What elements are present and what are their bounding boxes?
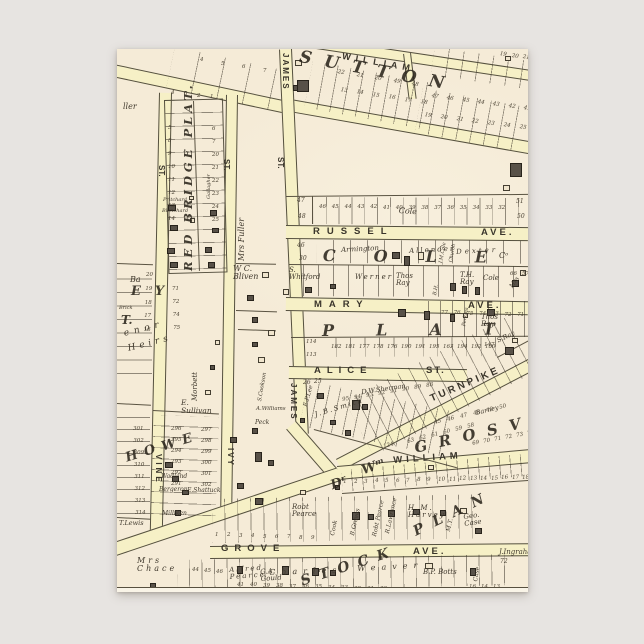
lot-number: 302 <box>201 483 212 489</box>
lot-number: 313 <box>135 499 146 505</box>
lot-number: 93 <box>366 393 374 400</box>
lot-50: 50 <box>517 214 525 220</box>
lot-number: 48 <box>411 82 419 89</box>
owner-th-ray: T.H. Ray <box>460 272 474 286</box>
lot-number: 291 <box>171 482 182 488</box>
lot-number: 12 <box>168 191 175 197</box>
lot-number: 35 <box>460 206 467 212</box>
lot-number: 76 <box>454 311 461 317</box>
lot-number: 20 <box>440 115 448 122</box>
lot-number: 6 <box>396 479 400 485</box>
lot-72: 72 <box>500 559 508 565</box>
lot-number: 301 <box>133 427 144 433</box>
lot-number: 22 <box>471 119 479 126</box>
lot-number: 37 <box>434 206 441 212</box>
owner-morbett: Morbett <box>192 372 199 401</box>
owner-bp-botts: B.P. Botts <box>423 569 457 576</box>
building <box>505 347 514 355</box>
street-label-russel: RUSSEL <box>313 227 394 237</box>
building <box>247 295 254 301</box>
lot-number: 77 <box>441 311 448 317</box>
building <box>368 514 374 520</box>
owner-e-sullivan: E. Sullivan <box>181 399 212 414</box>
street-label-james-lower: JAMES <box>289 383 297 421</box>
lot-number: 15 <box>491 476 498 482</box>
parcel-line <box>312 196 313 224</box>
lot-number: 1 <box>210 95 214 101</box>
owner-peck: Peck <box>255 420 269 426</box>
lot-number: 42 <box>370 205 377 211</box>
lot-number: 72 <box>172 300 179 306</box>
building <box>283 289 289 295</box>
lot-number: 38 <box>421 206 428 212</box>
street-label-james-st: ST. <box>276 157 284 169</box>
lot-number: 15 <box>372 93 380 100</box>
building <box>475 528 482 534</box>
building <box>212 228 219 233</box>
lot-number: 43 <box>357 205 364 211</box>
lot-number: 39 <box>409 206 416 212</box>
lot-number: 45 <box>332 205 339 211</box>
lot-number: 73 <box>516 433 524 440</box>
lot-number: 41 <box>383 206 390 212</box>
lot-number: 178 <box>373 345 384 351</box>
lot-number: 13 <box>493 585 500 588</box>
lot-number: 1 <box>215 533 219 539</box>
lot-number: 40 <box>250 583 257 588</box>
street-label-mary-ave: AVE. <box>468 301 501 311</box>
building <box>345 430 351 436</box>
building <box>252 428 258 434</box>
building <box>208 262 215 268</box>
owner-fuller-partial: ller <box>123 103 137 111</box>
lot-number: 92 <box>378 391 386 398</box>
lot-number: 298 <box>201 439 212 445</box>
lot-number: 9 <box>168 152 172 158</box>
lot-number: 180 <box>485 345 496 351</box>
lot-number: 292 <box>171 471 182 477</box>
lot-number: 24 <box>212 205 219 211</box>
lot-number: 47 <box>431 94 439 101</box>
lot-number: 195 <box>429 345 440 351</box>
marble-background: WILLIAMJAMESST.ST.ST.RUSSELAVE.MARYAVE.A… <box>0 0 644 644</box>
lot-number: 44 <box>192 568 199 574</box>
lot-number: 314 <box>135 511 146 517</box>
owner-brick: Brick <box>119 306 133 311</box>
street-label-james-vertical: JAMES <box>281 53 289 91</box>
lot-number: 16 <box>469 585 476 588</box>
building <box>268 460 274 466</box>
lot-number: 71 <box>494 437 502 444</box>
lot-number: 41 <box>237 583 244 588</box>
building <box>262 272 269 278</box>
building <box>255 452 262 462</box>
lot-number: 43 <box>492 102 500 109</box>
owner-ba: Ba <box>130 276 141 284</box>
lot-number: 50 <box>499 404 507 411</box>
lot-number: 13 <box>470 477 477 483</box>
lot-number: 25 <box>519 125 527 132</box>
lot-number: 5 <box>221 62 225 68</box>
lot-number: 4 <box>171 91 175 97</box>
lot-number: 74 <box>173 313 180 319</box>
lot-number: 19 <box>145 287 152 293</box>
lot-number: 71 <box>517 313 524 319</box>
lot-number: 69 <box>472 441 480 448</box>
lot-number: 194 <box>457 345 468 351</box>
lot-number: 35 <box>315 585 322 588</box>
lot-number: 46 <box>216 570 223 576</box>
lot-number: 3 <box>239 534 243 540</box>
building <box>210 210 217 216</box>
plat-label-red-bridge: RED BRIDGE PLAT. <box>183 81 195 271</box>
lot-number: 72 <box>505 435 513 442</box>
lot-number: 2 <box>354 480 358 486</box>
lot-number: 40 <box>396 206 403 212</box>
lot-number: 310 <box>134 463 145 469</box>
lot-number: 44 <box>345 205 352 211</box>
lot-114: 114 <box>306 340 317 346</box>
lot-number: 20 <box>146 273 153 279</box>
lot-number: 46 <box>446 96 454 103</box>
street-label-russel-ave: AVE. <box>481 228 514 238</box>
lot-number: 16 <box>144 328 151 334</box>
building <box>503 185 510 191</box>
lot-number: 41 <box>523 106 528 113</box>
lot-number: 71 <box>172 287 179 293</box>
lot-number: 16 <box>501 476 508 482</box>
owner-co: Cᵒ <box>499 252 508 260</box>
lot-number: 6 <box>275 535 279 541</box>
building <box>512 338 518 343</box>
lot-number: 33 <box>341 586 348 588</box>
building <box>297 80 309 92</box>
owner-wc-bliven: W C. Bliven <box>233 265 258 281</box>
lot-number: 2 <box>227 533 231 539</box>
lot-number: 13 <box>340 88 348 95</box>
lot-number: 302 <box>133 439 144 445</box>
lot-number: 34 <box>473 206 480 212</box>
building <box>150 583 156 588</box>
lot-number: 19 <box>499 52 507 59</box>
street-label-mary: MARY <box>314 300 370 310</box>
lot-number: 23 <box>212 192 219 198</box>
lot-number: 18 <box>522 475 528 481</box>
building <box>237 483 244 489</box>
lot-number: 176 <box>387 345 398 351</box>
building <box>450 283 456 291</box>
lot-number: 44 <box>477 100 485 107</box>
building <box>330 284 336 289</box>
lot-number: 2 <box>197 94 201 100</box>
lot-number: 4 <box>200 58 204 64</box>
lot-number: 7 <box>212 140 216 146</box>
lot-number: 312 <box>135 487 146 493</box>
lot-number: 7 <box>287 535 291 541</box>
lot-number: 22 <box>337 70 345 77</box>
lot-number: 48 <box>473 410 481 417</box>
owner-milliken: Milliken <box>162 511 187 517</box>
lot-number: 13 <box>168 204 175 210</box>
lot-number: 8 <box>299 536 303 542</box>
lot-number: 10 <box>438 477 445 483</box>
lot-number: 300 <box>201 461 212 467</box>
lot-number: 4 <box>251 534 255 540</box>
lot-number: 22 <box>212 179 219 185</box>
postcard: WILLIAMJAMESST.ST.ST.RUSSELAVE.MARYAVE.A… <box>117 49 528 592</box>
lot-number: 295 <box>171 438 182 444</box>
lot-47: 47 <box>297 198 305 204</box>
lot-number: 47 <box>460 413 468 420</box>
lot-number: 17 <box>404 98 412 105</box>
lot-number: 36 <box>302 585 309 588</box>
lot-113: 113 <box>306 353 317 359</box>
owner-blanchard: Blanchard <box>162 209 188 214</box>
street-label-grove: GROVE <box>221 544 285 554</box>
lot-number: 11 <box>168 178 175 184</box>
lot-number: 14 <box>481 585 488 588</box>
building <box>252 317 258 323</box>
building <box>170 225 178 231</box>
lot-number: 181 <box>345 345 356 351</box>
lot-number: 70 <box>483 439 491 446</box>
owner-thos-ray-1: Thos Ray <box>396 273 413 287</box>
street-label-st-left: ST. <box>157 165 165 177</box>
building <box>258 357 265 363</box>
building <box>252 342 258 347</box>
lot-number: 45 <box>204 569 211 575</box>
lot-number: 46 <box>319 205 326 211</box>
owner-robt-pearce-1: Robt Pearce <box>292 504 316 518</box>
lot-number: 14 <box>168 217 175 223</box>
lot-number: 12 <box>459 477 466 483</box>
lot-number: 32 <box>354 587 361 588</box>
lot-number: 42 <box>508 104 516 111</box>
lot-number: 21 <box>456 117 464 124</box>
lot-number: 296 <box>171 427 182 433</box>
owner-cole: Cole <box>483 275 499 282</box>
building <box>362 404 368 410</box>
parcel-line <box>236 310 277 312</box>
lot-number: 192 <box>471 345 482 351</box>
lot-57: 57 <box>522 272 528 278</box>
lot-number: 8 <box>417 478 421 484</box>
owner-whitford: S. Whitford <box>289 267 320 281</box>
building <box>293 85 298 91</box>
lot-48: 48 <box>298 214 306 220</box>
lot-number: 91 <box>390 389 398 396</box>
building <box>210 365 215 370</box>
lot-number: 19 <box>424 113 432 120</box>
lot-number: 182 <box>331 345 342 351</box>
lot-number: 23 <box>487 121 495 128</box>
lot-number: 72 <box>505 313 512 319</box>
lot-number: 33 <box>485 206 492 212</box>
lot-number: 8 <box>168 139 172 145</box>
lot-number: 9 <box>427 478 431 484</box>
lot-number: 74 <box>527 431 528 438</box>
lot-number: 75 <box>173 326 180 332</box>
lot-number: 31 <box>367 587 374 588</box>
building <box>462 286 467 294</box>
lot-66: 66 <box>510 272 517 278</box>
lot-number: 95 <box>342 397 350 404</box>
lot-number: 20 <box>212 153 219 159</box>
street-label-grove-ave: AVE. <box>413 547 446 557</box>
lot-number: 6 <box>242 65 246 71</box>
owner-t-lewis: T.Lewis <box>119 520 144 527</box>
lot-number: 301 <box>201 472 212 478</box>
lot-number: 191 <box>415 345 426 351</box>
building <box>255 498 263 505</box>
lot-number: 17 <box>512 476 519 482</box>
lot-number: 5 <box>184 92 188 98</box>
street-label-alice-st: ST. <box>426 366 446 376</box>
owner-a-williams: A.Williams <box>256 407 286 413</box>
lot-number: 11 <box>449 477 456 483</box>
lot-number: 36 <box>447 206 454 212</box>
lot-number: 75 <box>466 312 473 318</box>
lot-number: 5 <box>263 535 267 541</box>
street-label-st-mid: ST. <box>222 159 230 171</box>
lot-number: 5 <box>168 126 172 132</box>
building <box>215 340 220 345</box>
lot-51: 51 <box>516 199 524 205</box>
lot-number: 299 <box>201 450 212 456</box>
lot-30: 30 <box>299 256 307 262</box>
vintage-plat-map: WILLIAMJAMESST.ST.ST.RUSSELAVE.MARYAVE.A… <box>117 49 528 588</box>
lot-number: 311 <box>134 475 145 481</box>
building <box>230 437 237 443</box>
plat-label-t: T. <box>121 314 133 326</box>
lot-number: 73 <box>492 312 499 318</box>
lot-number: 14 <box>480 476 487 482</box>
owner-s-cookson: S.Cookson <box>258 372 269 402</box>
building <box>510 163 522 177</box>
lot-number: 4 <box>375 479 379 485</box>
building <box>205 390 211 395</box>
building <box>170 262 178 268</box>
lot-number: 37 <box>289 585 296 588</box>
lot-number: 88 <box>426 383 434 390</box>
lot-number: 163 <box>443 345 454 351</box>
building <box>205 247 212 253</box>
lot-number: 17 <box>144 314 151 320</box>
lot-number: 46 <box>447 416 455 423</box>
building <box>398 309 406 317</box>
lot-46b: 46 <box>297 243 305 249</box>
lot-26: 26 <box>303 380 311 386</box>
lot-number: 293 <box>171 460 182 466</box>
owner-bergeron: Bergeron <box>159 487 188 493</box>
owner-mrs-fuller: Mrs Fuller <box>238 218 246 261</box>
lot-number: 1 <box>343 480 347 486</box>
lot-number: 6 <box>212 127 216 133</box>
building <box>300 490 306 495</box>
lot-number: 309 <box>134 451 145 457</box>
building <box>167 248 175 254</box>
building <box>330 420 336 425</box>
lot-number: 34 <box>328 586 335 588</box>
lot-number: 9 <box>311 536 315 542</box>
lot-25: 25 <box>314 379 322 385</box>
lot-number: 7 <box>263 69 267 75</box>
building <box>424 311 430 320</box>
owner-geo-case: Geo. Case <box>463 512 482 529</box>
lot-number: 74 <box>479 312 486 318</box>
owner-e-shattuck: E.Shattuck <box>187 488 221 494</box>
lot-number: 24 <box>503 123 511 130</box>
lot-number: 20 <box>511 54 519 61</box>
lot-number: 32 <box>498 206 505 212</box>
building <box>305 287 312 293</box>
lot-number: 90 <box>402 387 410 394</box>
lot-number: 5 <box>385 479 389 485</box>
lot-number: 294 <box>171 449 182 455</box>
lot-number: 45 <box>462 98 470 105</box>
owner-mrs-chace: Mrs Chace <box>137 557 177 573</box>
owner-hm-harvey: H.M. Harvey <box>408 505 446 519</box>
lot-number: 94 <box>354 395 362 402</box>
lot-number: 38 <box>276 584 283 588</box>
lot-number: 18 <box>145 301 152 307</box>
lot-number: 21 <box>356 73 364 80</box>
building <box>317 393 324 399</box>
lot-number: 16 <box>388 95 396 102</box>
building <box>475 287 480 295</box>
lot-number: 18 <box>420 100 428 107</box>
owner-j-ingraham: J.Ingraham <box>499 549 528 556</box>
lot-number: 21 <box>212 166 219 172</box>
lot-number: 30 <box>380 587 387 588</box>
lot-number: 297 <box>201 428 212 434</box>
lot-number: 190 <box>401 345 412 351</box>
lot-number: 25 <box>212 218 219 224</box>
lot-number: 20 <box>374 76 382 83</box>
lot-number: 39 <box>263 584 270 588</box>
lot-number: 21 <box>522 55 528 62</box>
lot-number: 89 <box>414 385 422 392</box>
owner-werner: Werner <box>355 274 393 281</box>
building <box>428 465 434 470</box>
lot-number: 7 <box>406 478 410 484</box>
building <box>300 418 305 423</box>
lot-number: 49 <box>393 79 401 86</box>
lot-lines <box>165 100 226 273</box>
lot-number: 3 <box>364 479 368 485</box>
street-label-alice: ALICE <box>314 366 373 376</box>
parcel-line <box>117 263 153 265</box>
building <box>268 330 275 336</box>
lot-number: 49 <box>486 407 494 414</box>
street-label-ivy: IVY <box>226 448 234 467</box>
lot-number: 10 <box>168 165 175 171</box>
lot-number: 177 <box>359 345 370 351</box>
